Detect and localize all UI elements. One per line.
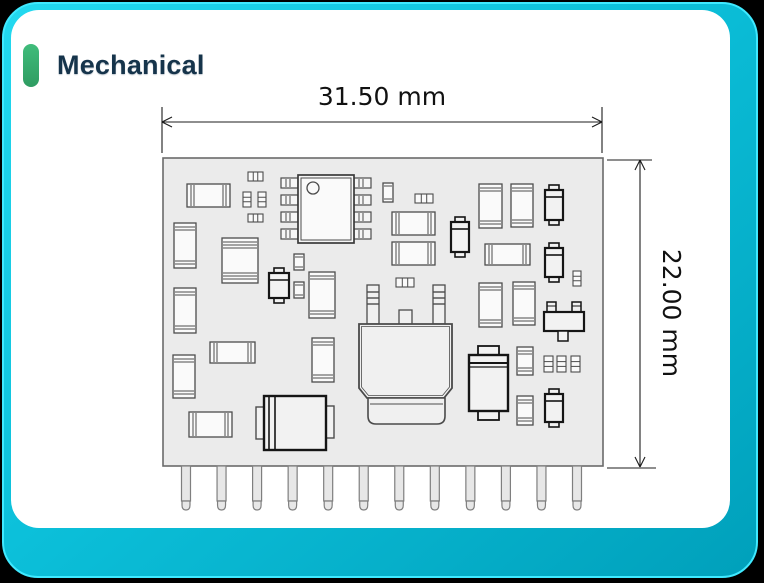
section-heading: Mechanical — [23, 44, 205, 87]
section-accent-bar — [23, 44, 39, 87]
content-area — [11, 10, 730, 528]
page: Mechanical 31.50 mm22.00 mm — [0, 0, 764, 583]
section-title: Mechanical — [57, 50, 205, 81]
